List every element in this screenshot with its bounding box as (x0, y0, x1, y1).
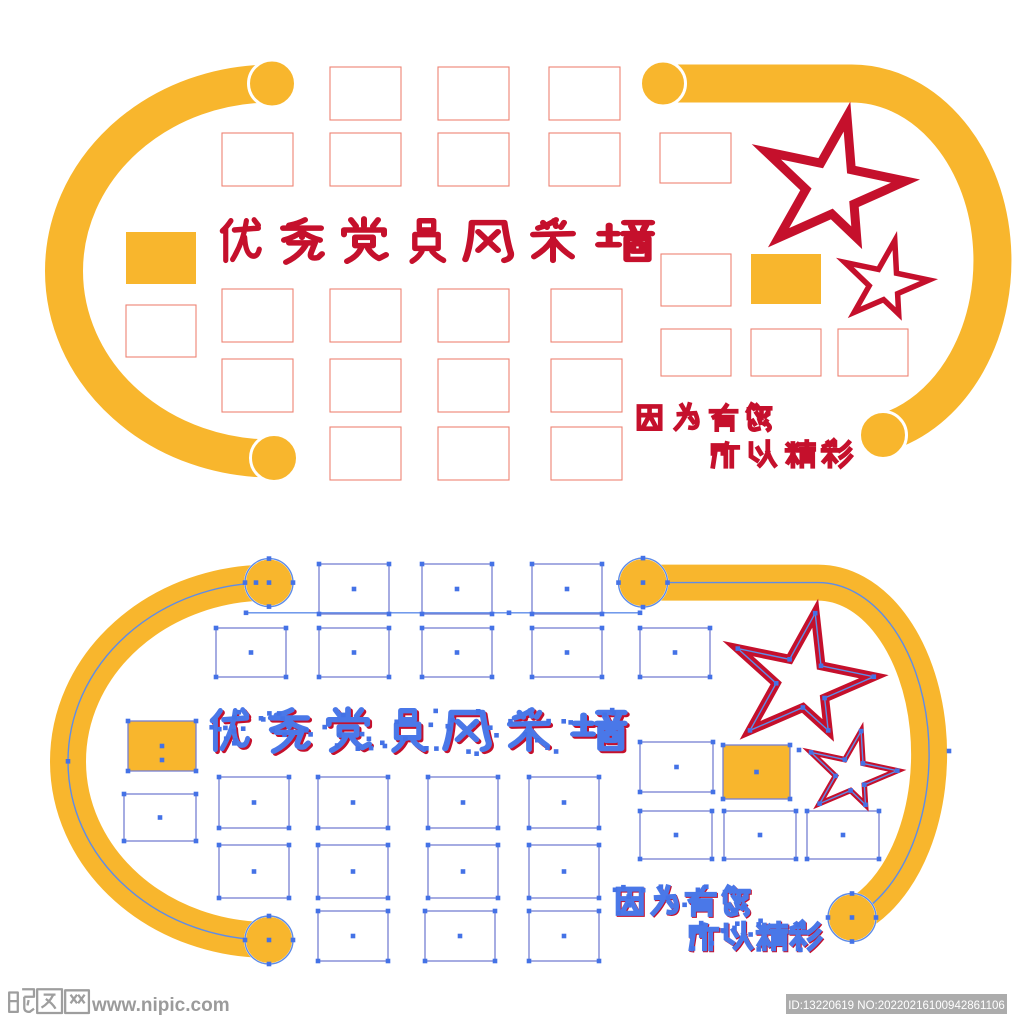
svg-text:www.nipic.com: www.nipic.com (91, 995, 230, 1016)
svg-text:ID:13220619 NO:202202161009428: ID:13220619 NO:20220216100942861106 (788, 1000, 1005, 1012)
